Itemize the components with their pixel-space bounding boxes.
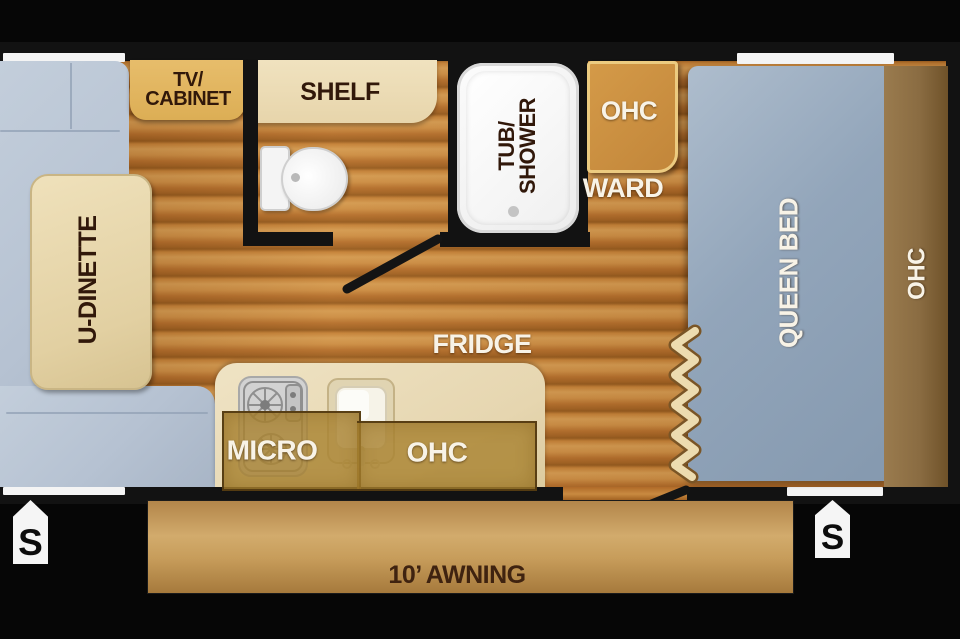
awning-label: 10’ AWNING xyxy=(388,564,525,588)
speaker-letter: S xyxy=(821,518,844,558)
micro-label: MICRO xyxy=(227,438,318,465)
speaker-letter: S xyxy=(18,522,43,564)
floorplan-image: U-DINETTE TV/CABINET SHELF TUB/SHOWER OH… xyxy=(0,0,960,639)
fridge-label: FRIDGE xyxy=(432,332,531,358)
kitchen-ohc-label: OHC xyxy=(407,440,468,467)
